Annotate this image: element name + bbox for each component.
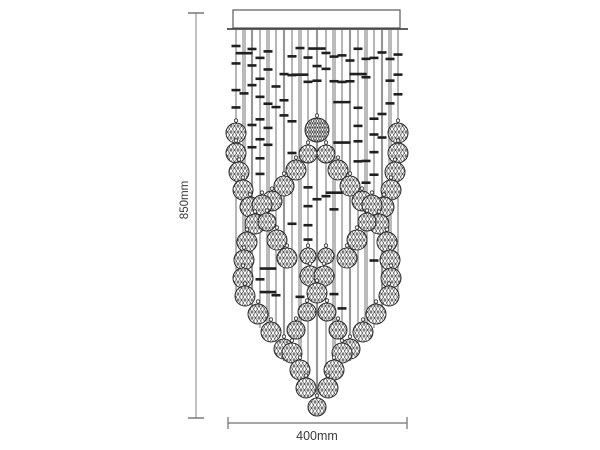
ball-facets [366, 304, 386, 324]
ball-hook-ring [361, 318, 364, 321]
ball-hook-ring [294, 156, 297, 159]
ball-facets [277, 248, 297, 268]
ball-hook-ring [355, 226, 358, 229]
crystal-ball [317, 141, 335, 163]
ball-hook-ring [234, 139, 237, 142]
ball-hook-ring [315, 394, 318, 397]
ball-hook-ring [308, 262, 311, 265]
ball-hook-ring [388, 246, 391, 249]
ball-facets [388, 143, 408, 163]
ball-hook-ring [256, 300, 259, 303]
ball-hook-ring [253, 210, 256, 213]
ball-hook-ring [377, 210, 380, 213]
ball-hook-ring [282, 172, 285, 175]
ball-hook-ring [385, 228, 388, 231]
ball-facets [318, 303, 336, 321]
ball-facets [299, 145, 317, 163]
ball-facets [308, 398, 326, 416]
ball-facets [381, 268, 401, 288]
ball-hook-ring [265, 209, 268, 212]
ball-hook-ring [305, 299, 308, 302]
height-dimension: 850mm [179, 13, 204, 418]
ball-hook-ring [234, 119, 237, 122]
ball-hook-ring [315, 279, 318, 282]
ball-facets [287, 321, 305, 339]
ball-hook-ring [387, 282, 390, 285]
ball-hook-ring [382, 193, 385, 196]
ball-facets [358, 213, 376, 231]
ball-facets [296, 378, 316, 398]
ball-facets [377, 232, 397, 252]
ball-hook-ring [294, 317, 297, 320]
crystal-ball [305, 114, 329, 142]
chandelier-diagram: 850mm 400mm [0, 0, 600, 450]
ball-hook-ring [348, 172, 351, 175]
ball-hook-ring [396, 119, 399, 122]
ball-hook-ring [241, 176, 244, 179]
ball-facets [318, 378, 338, 398]
width-dimension-label: 400mm [296, 429, 338, 443]
ball-hook-ring [322, 262, 325, 265]
width-dimension: 400mm [228, 417, 407, 443]
ball-facets [307, 283, 327, 303]
ball-facets [347, 230, 367, 250]
ball-facets [298, 303, 316, 321]
ball-hook-ring [389, 176, 392, 179]
canopy [227, 10, 408, 29]
ball-facets [226, 143, 246, 163]
ball-facets [353, 322, 373, 342]
ball-hook-ring [348, 335, 351, 338]
ball-hook-ring [245, 228, 248, 231]
ball-facets [318, 248, 334, 264]
drawing-canvas: 850mm 400mm [0, 0, 600, 450]
crystal-ball [299, 141, 317, 163]
ball-hook-ring [324, 244, 327, 247]
ball-hook-ring [242, 246, 245, 249]
ball-facets [305, 118, 329, 142]
ball-hook-ring [374, 300, 377, 303]
ball-facets [385, 162, 405, 182]
ball-facets [379, 286, 399, 306]
ball-hook-ring [360, 187, 363, 190]
ball-hook-ring [285, 244, 288, 247]
ball-facets [337, 248, 357, 268]
ball-hook-ring [365, 209, 368, 212]
ball-hook-ring [304, 374, 307, 377]
ball-hook-ring [345, 244, 348, 247]
ball-hook-ring [396, 139, 399, 142]
ball-facets [237, 232, 257, 252]
ball-hook-ring [269, 318, 272, 321]
ball-hook-ring [325, 299, 328, 302]
ball-hook-ring [248, 193, 251, 196]
ball-hook-ring [393, 158, 396, 161]
ball-facets [233, 268, 253, 288]
ball-hook-ring [282, 335, 285, 338]
canopy-plate [233, 10, 400, 28]
ball-facets [261, 322, 281, 342]
ball-facets [300, 248, 316, 264]
ball-facets [258, 213, 276, 231]
ball-hook-ring [336, 317, 339, 320]
ball-hook-ring [315, 114, 318, 117]
crystal-ball [300, 244, 316, 264]
ball-hook-ring [270, 187, 273, 190]
ball-hook-ring [290, 339, 293, 342]
ball-hook-ring [241, 264, 244, 267]
ball-hook-ring [298, 356, 301, 359]
ball-hook-ring [275, 226, 278, 229]
crystal-ball [318, 244, 334, 264]
ball-facets [267, 230, 287, 250]
ball-hook-ring [370, 191, 373, 194]
height-dimension-label: 850mm [179, 181, 191, 219]
ball-hook-ring [306, 244, 309, 247]
ball-facets [329, 321, 347, 339]
ball-hook-ring [306, 141, 309, 144]
ball-hook-ring [326, 374, 329, 377]
ball-facets [229, 162, 249, 182]
ball-hook-ring [324, 141, 327, 144]
ball-hook-ring [332, 356, 335, 359]
ball-facets [317, 145, 335, 163]
ball-hook-ring [389, 264, 392, 267]
ball-facets [248, 304, 268, 324]
ball-facets [235, 286, 255, 306]
ball-hook-ring [260, 191, 263, 194]
ball-hook-ring [336, 156, 339, 159]
ball-hook-ring [340, 339, 343, 342]
ball-hook-ring [243, 282, 246, 285]
ball-hook-ring [237, 158, 240, 161]
